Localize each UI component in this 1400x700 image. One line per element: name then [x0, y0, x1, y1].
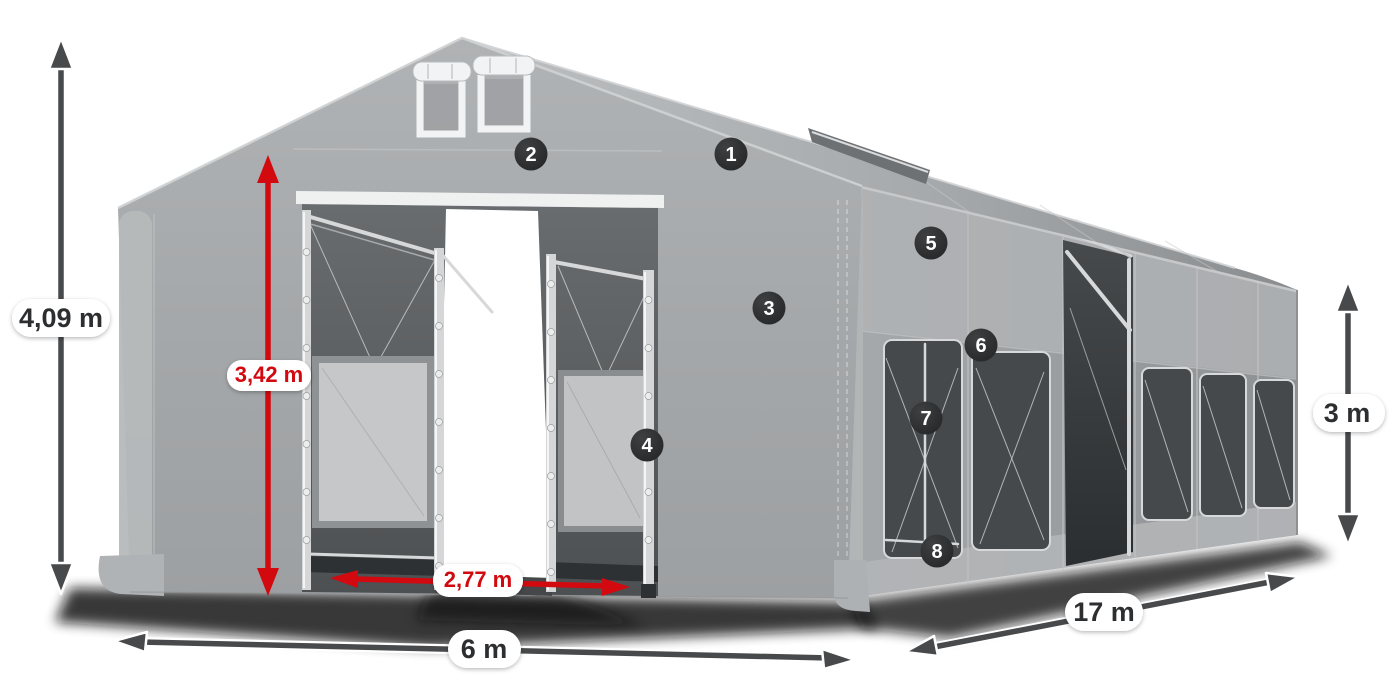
side-window-5 [1254, 380, 1294, 508]
callout-badge-2: 2 [515, 138, 548, 171]
callout-6-number: 6 [975, 335, 986, 357]
dimension-side-height: 3 m [1313, 281, 1385, 545]
side-open-section [1056, 220, 1133, 566]
front-right-skirt [834, 560, 870, 612]
front-left-skirt [99, 554, 164, 596]
entrance-height-label: 3,42 m [235, 362, 304, 387]
callout-badge-6: 6 [965, 329, 998, 362]
dimension-front-width: 6 m [114, 630, 855, 669]
front-width-label: 6 m [461, 634, 508, 664]
tent-illustration: 4,09 m 3,42 m 2,77 m 6 m 17 m [0, 0, 1400, 700]
callout-badge-3: 3 [753, 292, 786, 325]
entrance-opening [296, 191, 664, 598]
callout-8-number: 8 [931, 541, 942, 563]
callout-2-number: 2 [525, 144, 536, 166]
roof-vent-right [473, 56, 535, 129]
callout-badge-5: 5 [915, 227, 948, 260]
callout-4-number: 4 [641, 435, 653, 457]
total-height-label: 4,09 m [19, 303, 103, 333]
front-left-corner-band [119, 211, 152, 591]
callout-badge-8: 8 [921, 535, 954, 568]
side-window-4 [1200, 374, 1246, 516]
callout-7-number: 7 [920, 408, 931, 430]
scaffold-pole-right-inner [546, 254, 556, 592]
callout-5-number: 5 [925, 233, 936, 255]
entrance-width-label: 2,77 m [444, 567, 513, 592]
callout-1-number: 1 [725, 144, 736, 166]
see-through-gap [438, 209, 552, 596]
length-label: 17 m [1073, 597, 1135, 627]
callout-badge-4: 4 [631, 429, 664, 462]
side-window-1 [884, 340, 962, 558]
scaffold-pole-left-outer [302, 210, 311, 590]
side-height-label: 3 m [1324, 398, 1371, 428]
callout-badge-7: 7 [910, 402, 943, 435]
roof-vent-left [413, 62, 471, 134]
side-window-2 [972, 352, 1050, 550]
side-window-3 [1142, 368, 1192, 520]
dimension-total-height: 4,09 m [12, 38, 110, 594]
callout-3-number: 3 [763, 298, 774, 320]
tent-diagram-page: 4,09 m 3,42 m 2,77 m 6 m 17 m [0, 0, 1400, 700]
callout-badge-1: 1 [715, 138, 748, 171]
scaffold-pole-left-inner [434, 248, 444, 590]
